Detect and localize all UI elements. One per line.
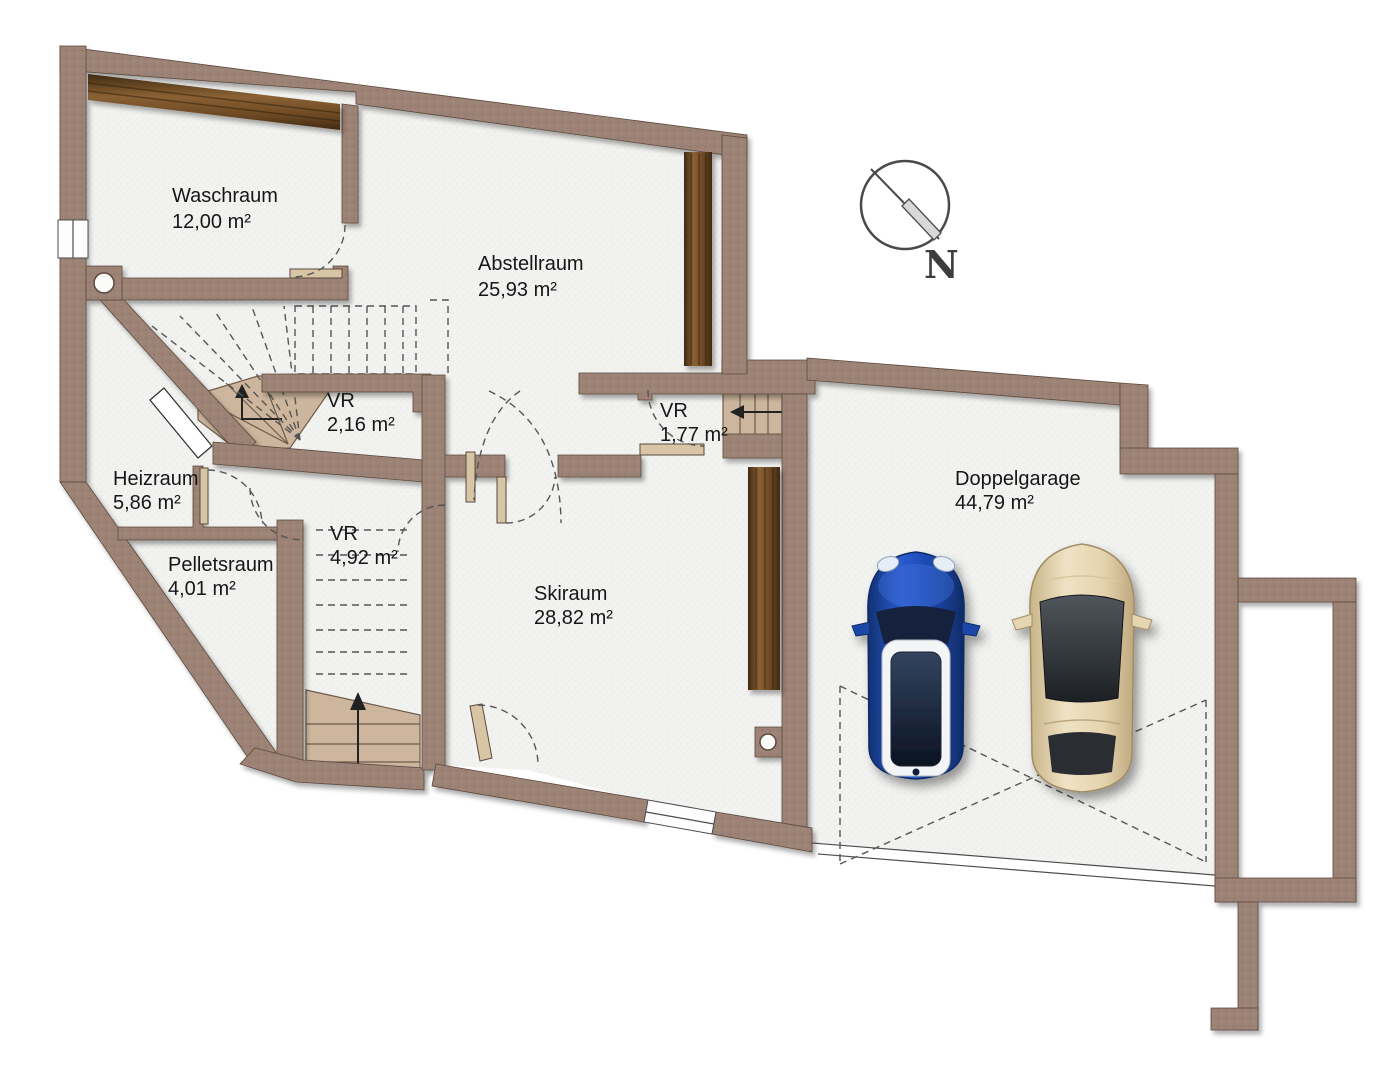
- wall-abstellraum-right: [722, 135, 747, 374]
- wall-pellets-right: [277, 520, 303, 760]
- room-label-heizraum: Heizraum: [113, 468, 199, 490]
- room-label-skiraum: Skiraum: [534, 583, 607, 605]
- car-blue: [852, 552, 980, 779]
- flue-opening: [760, 734, 776, 750]
- wood-closet-abstellraum: [684, 152, 712, 366]
- room-area-vr177: 1,77 m²: [660, 424, 728, 446]
- room-label-waschraum: Waschraum: [172, 185, 278, 207]
- room-label-abstellraum: Abstellraum: [478, 253, 584, 275]
- room-label-doppelgarage: Doppelgarage: [955, 468, 1081, 490]
- wall-terrace-top: [1238, 578, 1356, 602]
- compass-north-label: N: [924, 242, 959, 287]
- compass: N: [861, 161, 959, 287]
- room-area-abstellraum: 25,93 m²: [478, 279, 557, 301]
- flue-opening: [94, 273, 114, 293]
- door-leaf-abstellraum: [466, 452, 475, 502]
- compass-needle: [902, 199, 941, 240]
- wall-left: [60, 46, 86, 482]
- room-area-doppelgarage: 44,79 m²: [955, 492, 1034, 514]
- door-leaf-skiraum-top: [497, 477, 506, 523]
- wall-skiraum-left: [422, 375, 445, 770]
- car-blue-rear-detail: [913, 769, 920, 776]
- car-beige: [1012, 544, 1152, 792]
- wall-garage-step-2: [1120, 448, 1238, 474]
- room-label-vr216: VR: [327, 390, 355, 412]
- wall-waschraum-divider: [342, 104, 358, 223]
- car-blue-glass-roof: [891, 652, 941, 766]
- car-blue-windshield: [876, 606, 956, 644]
- wall-skiraum-garage: [782, 394, 807, 846]
- room-area-skiraum: 28,82 m²: [534, 607, 613, 629]
- wall-terrace-right: [1333, 602, 1356, 902]
- wall-terrace-bottom: [1215, 878, 1356, 902]
- room-label-pelletsraum: Pelletsraum: [168, 554, 274, 576]
- room-area-heizraum: 5,86 m²: [113, 492, 181, 514]
- wall-garage-step-1: [1120, 383, 1148, 450]
- floorplan-canvas: N Waschraum 12,00 m² Abstellraum 25,93 m…: [0, 0, 1374, 1080]
- floorplan-drawing: N Waschraum 12,00 m² Abstellraum 25,93 m…: [0, 0, 1374, 1080]
- room-area-waschraum: 12,00 m²: [172, 211, 251, 233]
- room-area-vr492: 4,92 m²: [330, 547, 398, 569]
- wall-retaining-foot: [1211, 1008, 1258, 1030]
- wood-closet-skiraum: [748, 467, 780, 690]
- car-beige-rear-window: [1048, 732, 1116, 775]
- room-label-vr492: VR: [330, 523, 358, 545]
- door-leaf-heizraum: [200, 468, 208, 524]
- room-label-vr177: VR: [660, 400, 688, 422]
- room-area-vr216: 2,16 m²: [327, 414, 395, 436]
- room-area-pelletsraum: 4,01 m²: [168, 578, 236, 600]
- car-beige-glass-roof: [1040, 595, 1124, 702]
- wall-terrace-left: [1215, 474, 1238, 902]
- wall-skiraum-top-b: [558, 455, 641, 477]
